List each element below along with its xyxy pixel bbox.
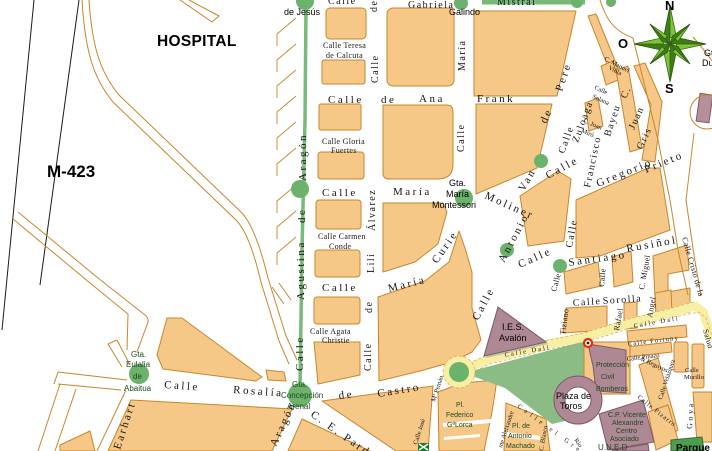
svg-text:Calle: Calle xyxy=(322,187,358,199)
svg-text:de: de xyxy=(296,208,308,223)
svg-text:Agustina: Agustina xyxy=(295,240,307,300)
svg-text:Gta.: Gta. xyxy=(292,380,307,389)
svg-text:Christie: Christie xyxy=(322,336,350,345)
svg-text:Civil: Civil xyxy=(601,374,615,381)
svg-text:Murillo: Murillo xyxy=(684,374,704,381)
svg-text:de: de xyxy=(133,372,142,381)
svg-text:Calle: Calle xyxy=(370,54,381,83)
svg-text:Calle Agata: Calle Agata xyxy=(310,327,351,336)
svg-text:Calle Carmen: Calle Carmen xyxy=(318,232,366,241)
svg-text:GªLorca: GªLorca xyxy=(447,422,473,429)
svg-text:Pl. de: Pl. de xyxy=(512,423,530,430)
svg-text:N: N xyxy=(665,0,674,13)
svg-text:HOSPITAL: HOSPITAL xyxy=(157,33,237,50)
svg-text:Calle: Calle xyxy=(294,335,306,371)
svg-text:Avalón: Avalón xyxy=(499,333,526,343)
svg-text:Antonio: Antonio xyxy=(508,433,532,440)
svg-text:U.N.E.D: U.N.E.D xyxy=(598,443,628,451)
svg-text:Concepción: Concepción xyxy=(281,391,323,400)
svg-text:Calle: Calle xyxy=(363,342,374,371)
svg-text:Calle: Calle xyxy=(322,282,358,294)
svg-text:Federico: Federico xyxy=(446,412,473,419)
svg-text:G o y a: G o y a xyxy=(685,403,695,429)
svg-text:Ana: Ana xyxy=(419,93,445,105)
svg-text:Calle: Calle xyxy=(328,94,364,106)
svg-text:Gta.: Gta. xyxy=(131,350,146,359)
svg-text:Gabriela: Gabriela xyxy=(408,0,454,11)
svg-text:Aragón: Aragón xyxy=(297,133,309,181)
svg-text:María: María xyxy=(446,189,469,199)
svg-text:Mistral: Mistral xyxy=(497,0,536,8)
svg-text:Calle: Calle xyxy=(572,296,601,309)
svg-text:Álvarez: Álvarez xyxy=(366,189,378,231)
svg-text:Duq: Duq xyxy=(702,58,712,68)
svg-text:Alexandre: Alexandre xyxy=(612,420,644,427)
svg-text:Montessori: Montessori xyxy=(432,200,476,210)
svg-text:Calle Teresa: Calle Teresa xyxy=(323,41,366,50)
svg-text:Machado: Machado xyxy=(506,443,535,450)
svg-text:de: de xyxy=(338,388,355,402)
svg-text:Conde: Conde xyxy=(329,242,352,251)
svg-text:Bomberos: Bomberos xyxy=(596,386,628,393)
svg-text:Abaitua: Abaitua xyxy=(124,384,152,393)
svg-text:de Jesús: de Jesús xyxy=(284,7,321,17)
svg-text:C.P. Vicente: C.P. Vicente xyxy=(608,412,646,419)
svg-text:Calle: Calle xyxy=(164,379,200,393)
svg-text:Calle: Calle xyxy=(597,268,608,287)
svg-text:de: de xyxy=(369,0,380,12)
svg-text:M-423: M-423 xyxy=(47,162,95,181)
svg-text:I.E.S.: I.E.S. xyxy=(502,322,524,332)
svg-text:Asociado: Asociado xyxy=(610,436,639,443)
svg-text:S: S xyxy=(665,81,674,96)
svg-text:Pl.: Pl. xyxy=(456,402,464,409)
svg-text:Centro: Centro xyxy=(616,428,637,435)
svg-text:María: María xyxy=(457,40,468,71)
svg-text:Gta.: Gta. xyxy=(449,178,466,188)
svg-text:Calle Gloria: Calle Gloria xyxy=(322,137,365,146)
svg-text:Gta: Gta xyxy=(704,48,712,58)
svg-text:de Calcuta: de Calcuta xyxy=(326,51,363,60)
svg-text:Parque: Parque xyxy=(676,443,710,451)
svg-text:O: O xyxy=(618,36,628,51)
svg-text:Frank: Frank xyxy=(477,93,515,105)
svg-text:Lili: Lili xyxy=(366,253,377,273)
svg-text:de: de xyxy=(381,94,396,106)
svg-text:María: María xyxy=(393,186,432,198)
svg-text:Plaza de: Plaza de xyxy=(556,391,591,401)
svg-text:Calle: Calle xyxy=(328,0,357,7)
svg-text:Protección: Protección xyxy=(596,362,629,369)
svg-text:Toros: Toros xyxy=(560,401,583,411)
svg-text:Calle: Calle xyxy=(685,367,699,374)
svg-text:de: de xyxy=(364,301,375,313)
svg-text:Fuertes: Fuertes xyxy=(331,146,357,155)
svg-text:Calle: Calle xyxy=(456,123,467,152)
svg-text:Eulalia: Eulalia xyxy=(126,360,151,369)
